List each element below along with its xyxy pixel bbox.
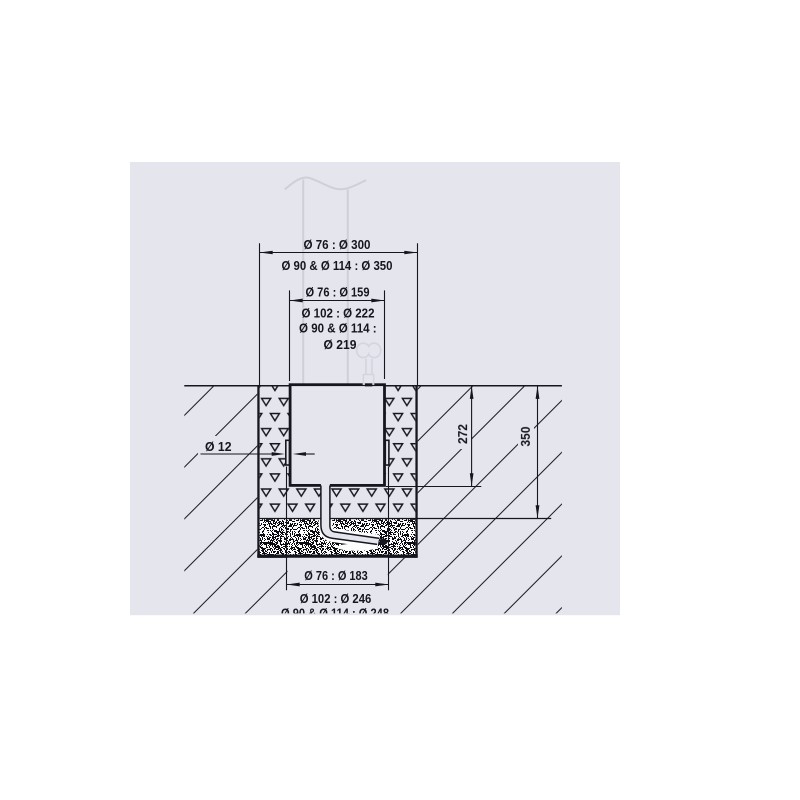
svg-text:Ø 90 & Ø 114 :: Ø 90 & Ø 114 : [299, 320, 377, 335]
svg-text:Ø 219: Ø 219 [324, 337, 357, 352]
svg-text:Ø 76 : Ø 183: Ø 76 : Ø 183 [304, 568, 368, 583]
svg-text:Ø 76 : Ø 300: Ø 76 : Ø 300 [304, 237, 371, 252]
svg-text:Ø 102 : Ø 222: Ø 102 : Ø 222 [302, 305, 375, 320]
svg-text:272: 272 [455, 424, 470, 444]
svg-text:Ø 12: Ø 12 [205, 439, 232, 454]
svg-text:Ø 90 & Ø 114 : Ø 350: Ø 90 & Ø 114 : Ø 350 [282, 258, 393, 273]
svg-text:Ø 76 : Ø 159: Ø 76 : Ø 159 [306, 284, 370, 299]
svg-text:350: 350 [518, 427, 533, 447]
svg-text:Ø 90 & Ø 114 : Ø 248: Ø 90 & Ø 114 : Ø 248 [281, 606, 389, 621]
svg-text:Ø 102 : Ø 246: Ø 102 : Ø 246 [300, 591, 372, 606]
